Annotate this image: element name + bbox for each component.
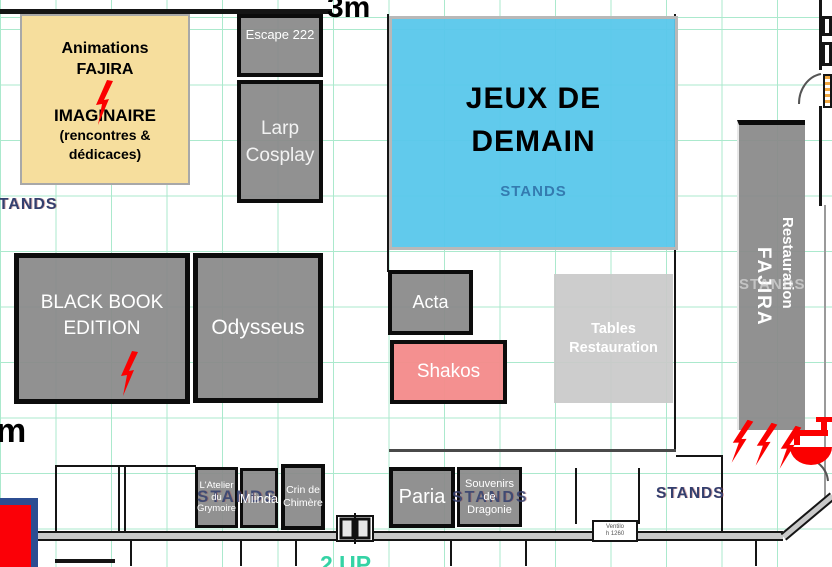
zone-label: BLACK BOOK: [41, 290, 164, 316]
wall-bottom-left: [55, 559, 115, 563]
diagonal-wall: [781, 492, 832, 540]
zone-label: Cosplay: [246, 142, 315, 169]
zone-label: Souvenirs: [465, 478, 514, 491]
zone-label: Chimère: [283, 497, 323, 510]
wall-double-a: [118, 467, 120, 531]
measure-label-3m: 3m: [327, 0, 370, 25]
wall-tick: [295, 540, 297, 566]
zone-label: Odysseus: [211, 316, 304, 340]
right-cabinet-box: [823, 74, 832, 108]
zone-larp-cosplay: Larp Cosplay: [237, 80, 323, 203]
zone-label: Crin de: [286, 484, 320, 497]
zone-tables-restauration: Tables Restauration: [554, 274, 673, 403]
wall-double-b: [124, 467, 126, 531]
measure-label-m: m: [0, 412, 26, 451]
right-room-box: [822, 42, 832, 66]
wall-tick: [525, 540, 527, 566]
zone-shakos: Shakos: [390, 340, 507, 404]
column-symbol: [336, 513, 374, 544]
lightning-icon: [728, 418, 755, 467]
zone-label: DEMAIN: [471, 120, 595, 163]
zone-restauration-fajira: Restauration FAJIRA: [737, 120, 805, 430]
zone-black-book-edition: BLACK BOOK EDITION: [14, 253, 190, 404]
zone-label: Miinda: [240, 491, 278, 506]
zone-label: EDITION: [63, 316, 140, 342]
corridor-wall: [0, 531, 783, 541]
zone-miinda: Miinda: [240, 468, 278, 528]
zone-label: du: [211, 492, 222, 504]
zone-label: (rencontres &: [59, 126, 150, 145]
wall-tick: [450, 540, 452, 566]
lightning-icon: [94, 80, 114, 126]
wall-horizontal-mid: [389, 449, 676, 452]
zone-crin-de-chimere: Crin de Chimère: [281, 464, 325, 530]
door-arc-top-right: [797, 72, 823, 106]
wall-room-left-v: [55, 465, 57, 531]
zone-label: JEUX DE: [466, 77, 601, 120]
zone-label: Tables: [591, 320, 636, 339]
stands-label-bottom-right: STANDS: [656, 485, 725, 503]
zone-jeux-de-demain: JEUX DE DEMAIN STANDS: [389, 16, 678, 250]
zone-label: Acta: [412, 292, 448, 313]
zone-escape-222: Escape 222: [237, 14, 323, 77]
zone-label: Shakos: [417, 361, 480, 383]
zone-label: Restauration: [779, 217, 796, 309]
zone-label: Paria: [399, 486, 446, 509]
zone-label: Grymoire: [197, 503, 236, 515]
wall-tick: [755, 540, 757, 566]
zone-label: dédicaces): [69, 145, 141, 164]
zone-animations-fajira: Animations FAJIRA IMAGINAIRE (rencontres…: [20, 14, 190, 185]
zone-label: Restauration: [569, 339, 658, 358]
wall-bay-top: [676, 455, 723, 457]
zone-label: de: [483, 491, 495, 504]
ventilo-note: Ventilo h 1260: [592, 520, 638, 542]
up-stairs-label: 2 UP: [320, 551, 371, 567]
wall-stand-bay-b: [638, 468, 640, 524]
stands-label-left: STANDS: [0, 196, 58, 214]
wall-tick: [130, 540, 132, 566]
stands-label-restauration: STANDS: [739, 276, 806, 293]
zone-acta: Acta: [388, 270, 473, 335]
zone-label: Animations: [61, 38, 148, 59]
zone-paria: Paria: [389, 467, 455, 528]
utility-box: [0, 498, 38, 567]
zone-label: FAJIRA: [77, 59, 134, 80]
zone-label: Larp: [261, 115, 299, 142]
zone-odysseus: Odysseus: [193, 253, 323, 403]
ventilo-text-line2: h 1260: [606, 531, 624, 538]
wall-tick: [240, 540, 242, 566]
zone-label: L'Atelier: [199, 480, 233, 492]
right-room-box: [822, 16, 832, 36]
zone-label: Dragonie: [467, 504, 512, 517]
sink-icon: [790, 417, 832, 467]
zone-label: Escape 222: [246, 27, 315, 42]
wall-stand-bay-a: [575, 468, 577, 524]
floor-plan: Ventilo h 1260 STANDS Animations FAJIRA …: [0, 0, 832, 567]
lightning-icon: [119, 351, 139, 397]
stands-label-jeux: STANDS: [392, 170, 675, 213]
ventilo-text-line1: Ventilo: [606, 524, 624, 531]
wall-right-mid: [819, 106, 822, 206]
